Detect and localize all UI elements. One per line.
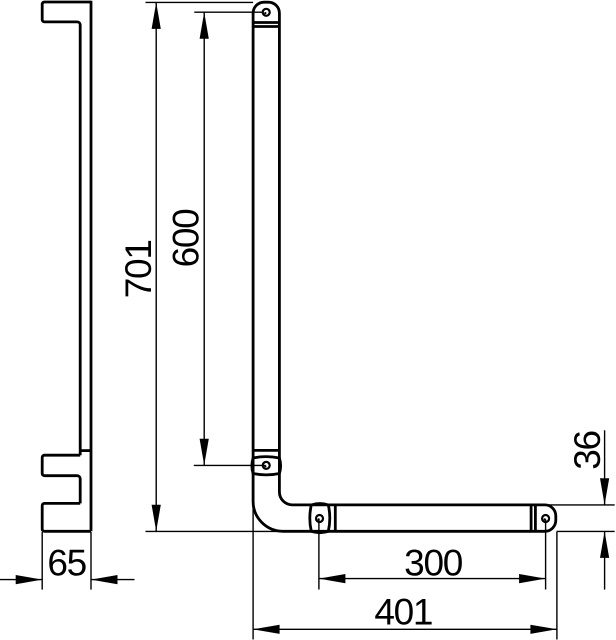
svg-text:36: 36 xyxy=(567,431,608,470)
svg-text:600: 600 xyxy=(166,209,207,268)
svg-text:401: 401 xyxy=(374,591,432,632)
svg-text:65: 65 xyxy=(47,542,86,583)
svg-text:300: 300 xyxy=(404,543,463,584)
svg-text:701: 701 xyxy=(118,240,159,298)
